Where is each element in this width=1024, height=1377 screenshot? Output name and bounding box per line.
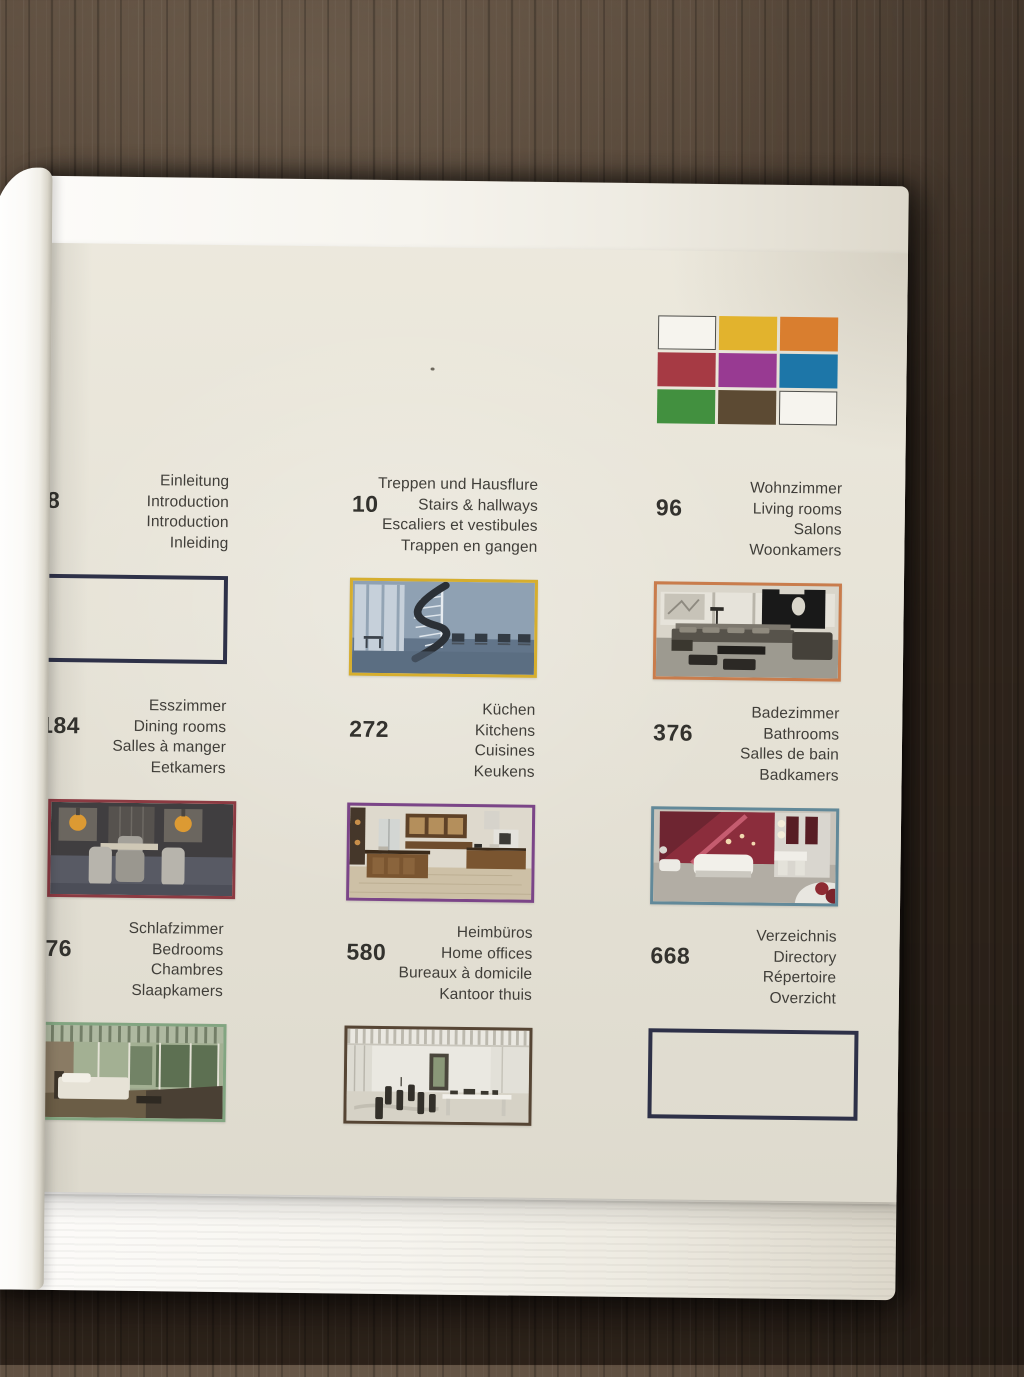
color-swatch bbox=[657, 389, 715, 424]
toc-entry-living-rooms: 96 Wohnzimmer Living rooms Salons Woonka… bbox=[570, 476, 843, 691]
entry-title-nl: Overzicht bbox=[586, 986, 836, 1010]
empty-placeholder-box bbox=[647, 1028, 858, 1121]
living-room-photo bbox=[656, 584, 839, 678]
entry-title-nl: Keukens bbox=[285, 760, 535, 784]
color-swatch bbox=[779, 391, 837, 426]
home-office-section-thumbnail bbox=[343, 1026, 532, 1126]
paper-speck bbox=[431, 368, 435, 371]
dining-room-photo bbox=[50, 802, 233, 896]
living-room-section-thumbnail bbox=[653, 581, 842, 681]
color-swatch bbox=[657, 352, 715, 387]
bedroom-section-thumbnail bbox=[37, 1022, 226, 1122]
kitchen-section-thumbnail bbox=[346, 803, 535, 903]
kitchen-photo bbox=[349, 806, 532, 900]
book: 8 Einleitung Introduction Introduction I… bbox=[0, 0, 1024, 1377]
dining-room-section-thumbnail bbox=[47, 799, 236, 899]
color-swatch bbox=[718, 390, 776, 425]
toc-entry-directory: 668 Verzeichnis Directory Répertoire Ove… bbox=[564, 924, 837, 1139]
color-swatch bbox=[658, 315, 716, 350]
toc-entry-bathrooms: 376 Badezimmer Bathrooms Salles de bain … bbox=[567, 701, 840, 916]
stairs-photo bbox=[352, 581, 535, 675]
entry-titles: Wohnzimmer Living rooms Salons Woonkamer… bbox=[591, 477, 842, 562]
empty-placeholder-box bbox=[37, 574, 228, 664]
color-swatch bbox=[779, 354, 837, 389]
entry-titles: Heimbüros Home offices Bureaux à domicil… bbox=[282, 921, 533, 1006]
toc-entry-stairs: 10 Treppen und Hausflure Stairs & hallwa… bbox=[266, 473, 539, 688]
bathroom-photo bbox=[653, 809, 836, 903]
entry-titles: Verzeichnis Directory Répertoire Overzic… bbox=[586, 924, 837, 1009]
entry-titles: Treppen und Hausflure Stairs & hallways … bbox=[287, 473, 538, 558]
entry-title-nl: Badkamers bbox=[589, 763, 839, 787]
color-swatch-grid bbox=[657, 315, 838, 425]
color-swatch bbox=[780, 317, 838, 352]
bedroom-photo bbox=[40, 1025, 223, 1119]
entry-title-nl: Kantoor thuis bbox=[282, 983, 532, 1007]
color-swatch bbox=[719, 316, 777, 351]
stairs-section-thumbnail bbox=[349, 578, 538, 678]
entry-title-nl: Trappen en gangen bbox=[287, 535, 537, 559]
page-curl-edge bbox=[0, 167, 53, 1289]
contents-page: 8 Einleitung Introduction Introduction I… bbox=[38, 243, 908, 1202]
entry-titles: Badezimmer Bathrooms Salles de bain Badk… bbox=[589, 702, 840, 787]
toc-entry-kitchens: 272 Küchen Kitchens Cuisines Keukens bbox=[263, 698, 536, 913]
bathroom-section-thumbnail bbox=[650, 806, 839, 906]
entry-titles: Küchen Kitchens Cuisines Keukens bbox=[285, 698, 536, 783]
entry-title-nl: Woonkamers bbox=[591, 538, 841, 562]
home-office-photo bbox=[346, 1029, 529, 1123]
toc-entry-home-offices: 580 Heimbüros Home offices Bureaux à dom… bbox=[260, 921, 533, 1136]
color-swatch bbox=[718, 353, 776, 388]
